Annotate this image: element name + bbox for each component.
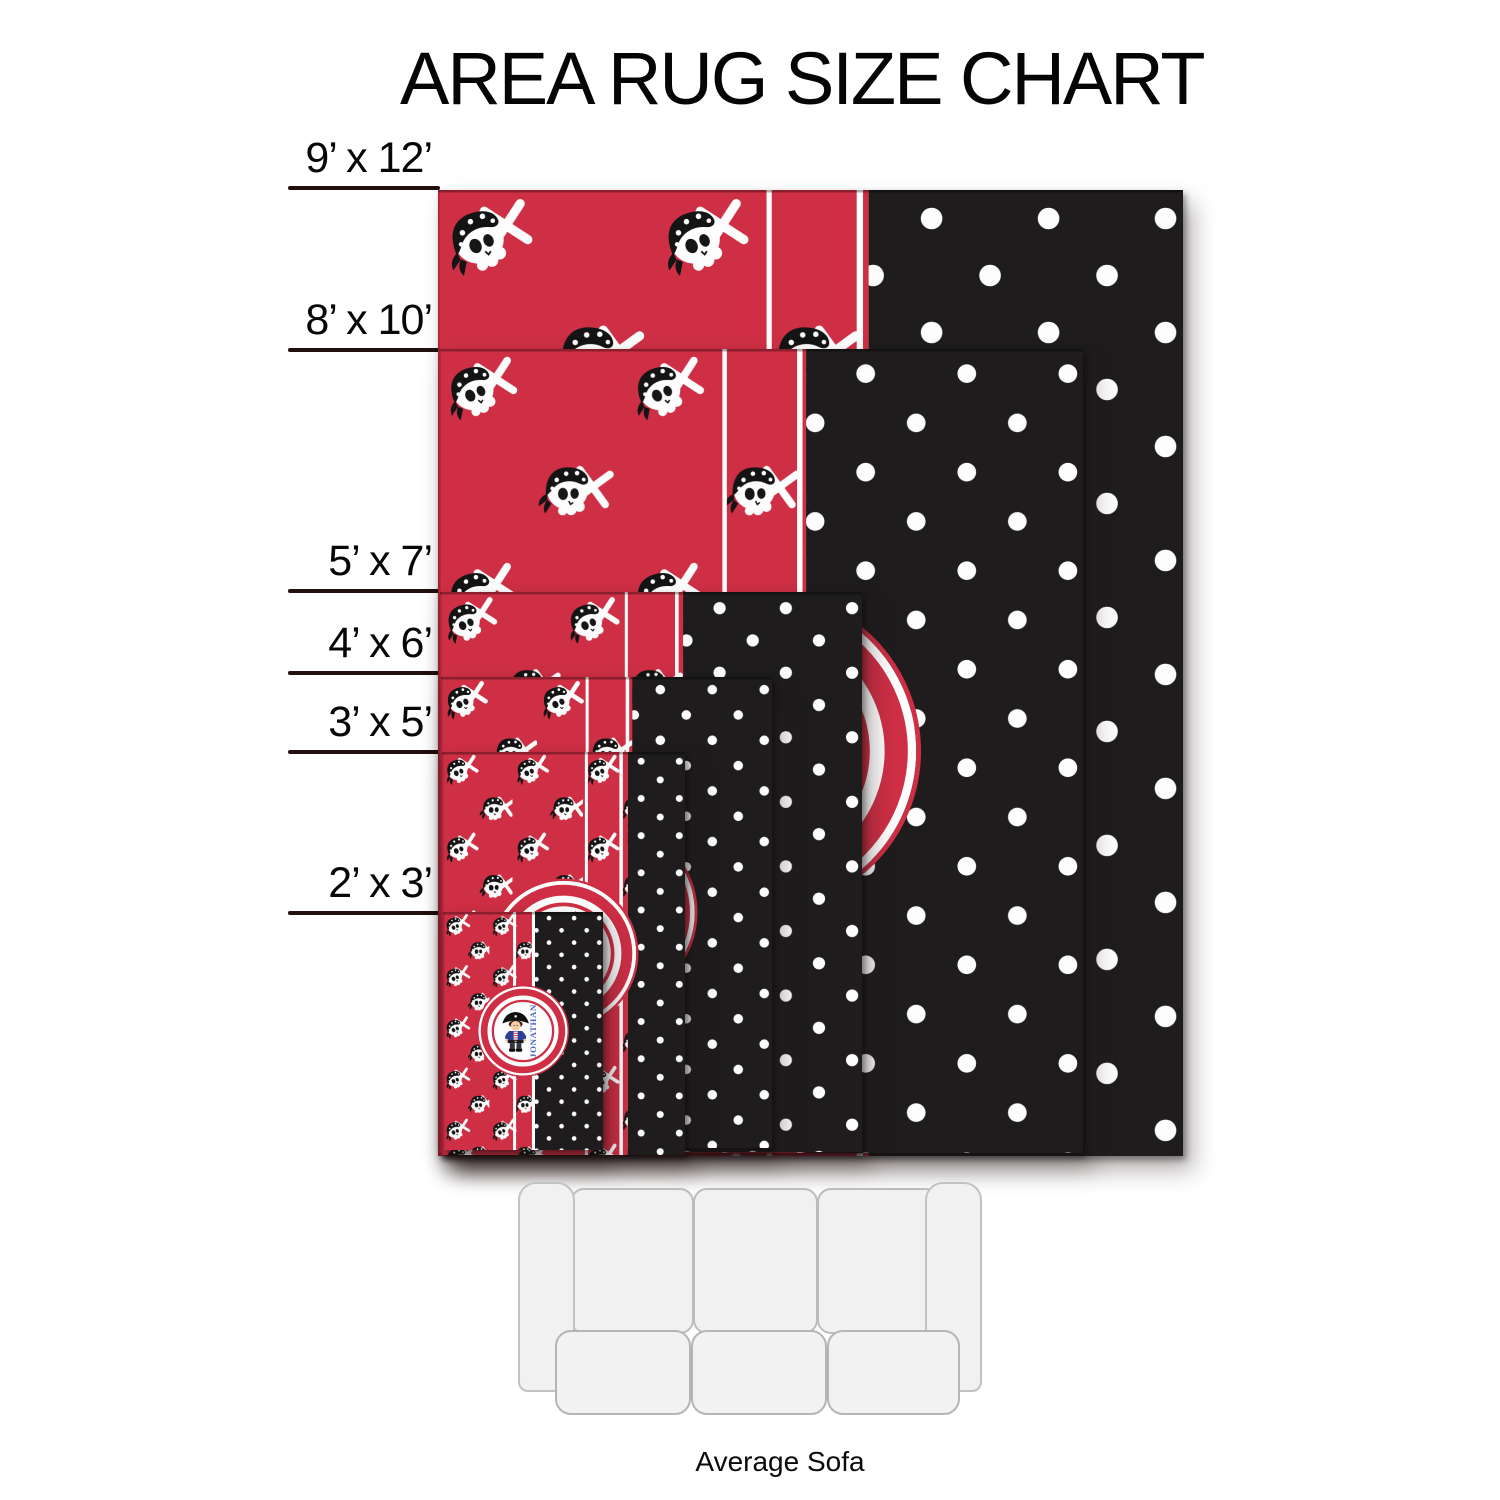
rug-badge: JONATHAN [478,986,569,1077]
rug-2x3: JONATHAN [443,912,603,1150]
size-label-9x12: 9’ x 12’ [200,137,432,180]
sofa-seat-cushion [555,1330,691,1415]
size-line-5x7 [288,589,442,593]
page-title: AREA RUG SIZE CHART [400,36,1200,121]
sofa-seat-cushion [691,1330,827,1415]
rug-monogram-text: JONATHAN [528,1004,538,1058]
average-sofa-illustration [515,1182,985,1415]
size-line-2x3 [288,911,445,915]
size-line-4x6 [288,671,443,675]
size-line-8x10 [288,348,441,352]
sofa-back-cushion [693,1188,818,1334]
sofa-back-cushion [817,1188,941,1334]
size-line-3x5 [288,750,444,754]
size-label-3x5: 3’ x 5’ [200,701,432,744]
size-line-9x12 [288,186,440,190]
size-label-5x7: 5’ x 7’ [200,540,432,583]
rug-size-chart: AREA RUG SIZE CHART 9’ x 12’8’ x 10’5’ x… [0,0,1500,1500]
size-label-8x10: 8’ x 10’ [200,299,432,342]
size-label-4x6: 4’ x 6’ [200,622,432,665]
sofa-back-cushion [570,1188,694,1334]
size-label-2x3: 2’ x 3’ [200,862,432,905]
sofa-caption: Average Sofa [580,1446,980,1478]
sofa-seat-cushion [827,1330,960,1415]
